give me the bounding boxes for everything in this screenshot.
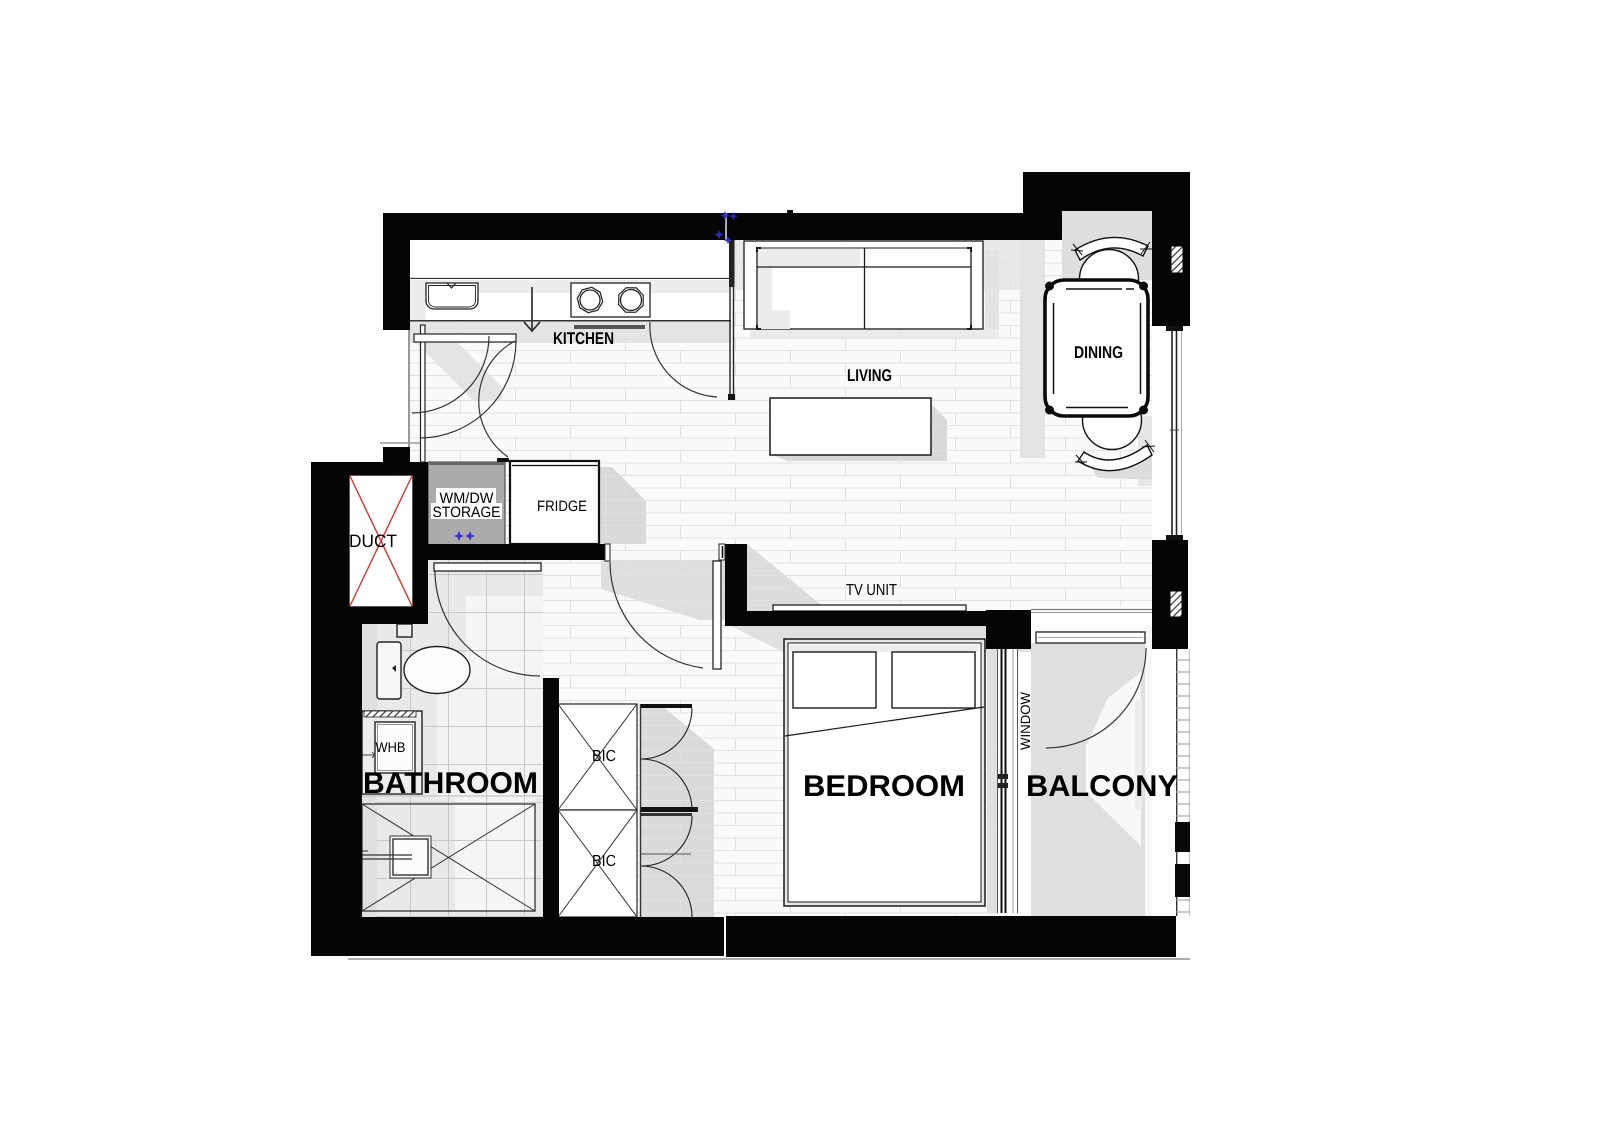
svg-text:BATHROOM: BATHROOM bbox=[363, 767, 538, 800]
svg-text:BALCONY: BALCONY bbox=[1026, 770, 1178, 803]
svg-text:STORAGE: STORAGE bbox=[433, 504, 501, 521]
svg-text:WHB: WHB bbox=[376, 739, 406, 755]
svg-text:WINDOW: WINDOW bbox=[1018, 692, 1033, 750]
svg-text:BIC: BIC bbox=[592, 853, 616, 870]
svg-text:FRIDGE: FRIDGE bbox=[537, 498, 587, 515]
svg-text:LIVING: LIVING bbox=[847, 366, 892, 385]
svg-text:BEDROOM: BEDROOM bbox=[803, 770, 965, 803]
svg-text:DUCT: DUCT bbox=[349, 531, 397, 551]
svg-text:DINING: DINING bbox=[1074, 343, 1123, 362]
svg-text:KITCHEN: KITCHEN bbox=[553, 329, 614, 348]
svg-text:TV UNIT: TV UNIT bbox=[846, 582, 897, 599]
svg-text:BIC: BIC bbox=[592, 748, 616, 765]
